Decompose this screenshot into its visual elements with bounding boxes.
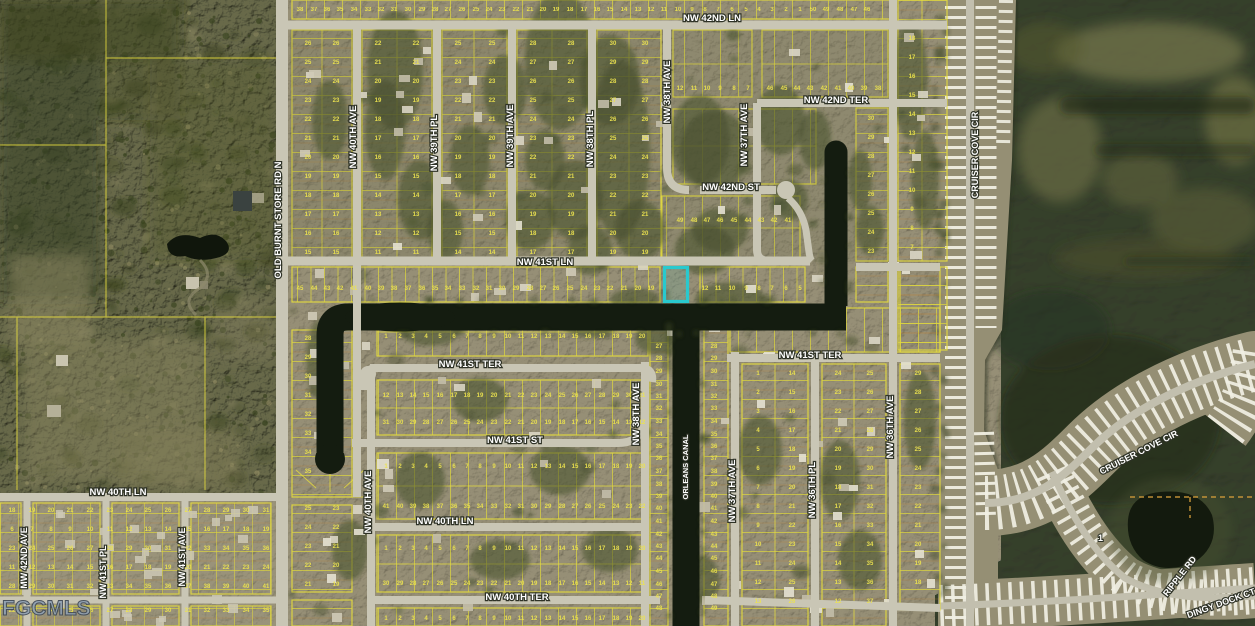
svg-text:23: 23: [530, 136, 537, 142]
svg-text:33: 33: [305, 431, 312, 437]
svg-text:41: 41: [351, 286, 358, 292]
svg-text:23: 23: [626, 504, 633, 510]
svg-text:34: 34: [656, 432, 663, 438]
svg-text:40: 40: [397, 504, 404, 510]
svg-text:13: 13: [413, 212, 420, 218]
svg-text:26: 26: [530, 79, 537, 85]
svg-text:29: 29: [29, 584, 36, 590]
svg-text:22: 22: [413, 41, 420, 47]
svg-text:17: 17: [455, 193, 462, 199]
svg-text:25: 25: [610, 136, 617, 142]
svg-text:30: 30: [397, 420, 404, 426]
svg-text:25: 25: [789, 580, 796, 586]
svg-text:18: 18: [333, 193, 340, 199]
svg-text:35: 35: [305, 469, 312, 475]
svg-text:13: 13: [545, 464, 552, 470]
svg-text:21: 21: [642, 212, 649, 218]
svg-text:NW 41ST LN: NW 41ST LN: [517, 257, 574, 268]
svg-text:26: 26: [451, 420, 458, 426]
svg-text:25: 25: [567, 286, 574, 292]
svg-text:30: 30: [243, 508, 250, 514]
svg-text:35: 35: [464, 504, 471, 510]
svg-text:49: 49: [677, 218, 684, 224]
svg-text:24: 24: [915, 466, 922, 472]
svg-text:20: 20: [540, 7, 547, 13]
svg-text:23: 23: [305, 544, 312, 550]
svg-text:13: 13: [545, 334, 552, 340]
svg-text:27: 27: [423, 581, 430, 587]
svg-text:21: 21: [305, 582, 312, 588]
svg-text:29: 29: [126, 546, 133, 552]
svg-text:23: 23: [333, 98, 340, 104]
svg-text:26: 26: [610, 117, 617, 123]
svg-text:38: 38: [656, 482, 663, 488]
svg-text:18: 18: [568, 231, 575, 237]
svg-text:17: 17: [909, 55, 916, 61]
svg-text:20: 20: [491, 393, 498, 399]
svg-text:21: 21: [505, 393, 512, 399]
svg-text:33: 33: [656, 419, 663, 425]
svg-text:14: 14: [67, 565, 74, 571]
svg-text:11: 11: [107, 527, 114, 533]
svg-text:19: 19: [568, 212, 575, 218]
svg-text:22: 22: [789, 523, 796, 529]
svg-text:13: 13: [397, 393, 404, 399]
svg-text:39: 39: [378, 286, 385, 292]
svg-text:13: 13: [755, 599, 762, 605]
svg-text:NW 41ST TER: NW 41ST TER: [439, 359, 502, 370]
svg-text:16: 16: [585, 420, 592, 426]
svg-text:44: 44: [794, 86, 801, 92]
svg-text:34: 34: [126, 584, 133, 590]
svg-text:23: 23: [594, 286, 601, 292]
svg-text:21: 21: [621, 286, 628, 292]
svg-text:15: 15: [305, 250, 312, 256]
svg-text:14: 14: [613, 420, 620, 426]
svg-text:18: 18: [613, 546, 620, 552]
svg-text:NW 40TH AVE: NW 40TH AVE: [363, 471, 374, 534]
svg-text:39: 39: [861, 86, 868, 92]
svg-text:30: 30: [868, 116, 875, 122]
svg-text:41: 41: [383, 504, 390, 510]
svg-text:41: 41: [656, 519, 663, 525]
svg-text:17: 17: [223, 527, 230, 533]
svg-text:13: 13: [835, 580, 842, 586]
svg-text:20: 20: [835, 447, 842, 453]
svg-text:15: 15: [375, 174, 382, 180]
svg-text:48: 48: [837, 7, 844, 13]
svg-text:41: 41: [711, 506, 718, 512]
svg-text:NW 38TH AVE: NW 38TH AVE: [662, 61, 673, 124]
svg-text:19: 19: [626, 616, 633, 622]
svg-text:13: 13: [48, 565, 55, 571]
svg-text:12: 12: [909, 150, 916, 156]
svg-text:29: 29: [711, 356, 718, 362]
svg-text:28: 28: [9, 584, 16, 590]
svg-text:17: 17: [375, 136, 382, 142]
svg-text:30: 30: [656, 382, 663, 388]
svg-text:25: 25: [48, 546, 55, 552]
svg-text:25: 25: [868, 211, 875, 217]
svg-text:NW 38TH AVE: NW 38TH AVE: [631, 383, 642, 446]
svg-text:16: 16: [375, 155, 382, 161]
svg-text:23: 23: [489, 79, 496, 85]
svg-text:15: 15: [572, 464, 579, 470]
svg-text:22: 22: [530, 155, 537, 161]
svg-text:46: 46: [767, 86, 774, 92]
svg-text:27: 27: [915, 409, 922, 415]
svg-text:19: 19: [610, 250, 617, 256]
svg-text:21: 21: [489, 117, 496, 123]
svg-text:16: 16: [455, 212, 462, 218]
svg-text:23: 23: [455, 79, 462, 85]
svg-text:28: 28: [599, 393, 606, 399]
svg-text:32: 32: [711, 394, 718, 400]
svg-text:29: 29: [419, 7, 426, 13]
svg-text:23: 23: [491, 420, 498, 426]
svg-text:22: 22: [568, 155, 575, 161]
svg-text:49: 49: [711, 606, 718, 612]
svg-text:10: 10: [704, 86, 711, 92]
svg-text:19: 19: [626, 464, 633, 470]
svg-text:NW 42ND LN: NW 42ND LN: [683, 13, 741, 24]
svg-text:16: 16: [585, 464, 592, 470]
svg-text:40: 40: [243, 584, 250, 590]
svg-text:10: 10: [909, 188, 916, 194]
svg-text:20: 20: [489, 136, 496, 142]
svg-text:41: 41: [785, 218, 792, 224]
svg-text:36: 36: [867, 580, 874, 586]
svg-text:17: 17: [305, 212, 312, 218]
svg-text:19: 19: [413, 98, 420, 104]
svg-text:16: 16: [909, 74, 916, 80]
svg-text:20: 20: [530, 193, 537, 199]
svg-text:30: 30: [867, 466, 874, 472]
svg-text:28: 28: [527, 286, 534, 292]
svg-text:25: 25: [305, 60, 312, 66]
svg-text:36: 36: [711, 444, 718, 450]
svg-text:19: 19: [626, 334, 633, 340]
svg-text:26: 26: [67, 546, 74, 552]
svg-text:12: 12: [677, 86, 684, 92]
svg-text:22: 22: [87, 508, 94, 514]
svg-text:14: 14: [909, 112, 916, 118]
svg-text:28: 28: [410, 581, 417, 587]
svg-text:16: 16: [835, 523, 842, 529]
svg-text:44: 44: [656, 556, 663, 562]
svg-text:11: 11: [9, 565, 16, 571]
svg-text:16: 16: [594, 7, 601, 13]
svg-text:20: 20: [639, 616, 646, 622]
svg-text:34: 34: [305, 450, 312, 456]
svg-text:NW 41ST AVE: NW 41ST AVE: [177, 527, 187, 586]
svg-text:35: 35: [432, 286, 439, 292]
svg-text:NW 42ND ST: NW 42ND ST: [702, 182, 760, 193]
svg-text:26: 26: [572, 393, 579, 399]
svg-text:28: 28: [868, 154, 875, 160]
svg-text:18: 18: [413, 117, 420, 123]
svg-text:25: 25: [455, 41, 462, 47]
svg-text:35: 35: [711, 432, 718, 438]
svg-text:14: 14: [410, 393, 417, 399]
svg-text:15: 15: [572, 546, 579, 552]
svg-text:18: 18: [464, 393, 471, 399]
svg-text:23: 23: [107, 508, 114, 514]
svg-text:14: 14: [489, 250, 496, 256]
svg-text:11: 11: [639, 581, 646, 587]
svg-text:22: 22: [607, 286, 614, 292]
svg-text:27: 27: [540, 286, 547, 292]
svg-text:25: 25: [915, 447, 922, 453]
svg-text:35: 35: [243, 546, 250, 552]
svg-text:38: 38: [391, 286, 398, 292]
svg-text:15: 15: [585, 581, 592, 587]
svg-text:14: 14: [559, 464, 566, 470]
svg-text:22: 22: [305, 117, 312, 123]
svg-text:19: 19: [915, 561, 922, 567]
svg-text:31: 31: [165, 546, 172, 552]
svg-text:15: 15: [413, 174, 420, 180]
svg-text:45: 45: [656, 569, 663, 575]
svg-text:19: 19: [626, 546, 633, 552]
svg-text:33: 33: [223, 608, 230, 614]
svg-text:28: 28: [642, 79, 649, 85]
svg-text:CRUISER COVE CIR: CRUISER COVE CIR: [970, 111, 980, 198]
svg-text:27: 27: [572, 504, 579, 510]
svg-text:18: 18: [613, 616, 620, 622]
svg-text:17: 17: [599, 334, 606, 340]
svg-text:18: 18: [613, 464, 620, 470]
svg-text:36: 36: [656, 456, 663, 462]
svg-text:25: 25: [599, 504, 606, 510]
svg-text:25: 25: [489, 41, 496, 47]
svg-text:29: 29: [545, 504, 552, 510]
svg-text:20: 20: [610, 231, 617, 237]
svg-text:15: 15: [599, 420, 606, 426]
svg-text:30: 30: [642, 41, 649, 47]
svg-text:12: 12: [126, 527, 133, 533]
svg-text:NW 41ST TER: NW 41ST TER: [779, 350, 842, 361]
svg-text:23: 23: [499, 7, 506, 13]
svg-text:31: 31: [656, 394, 663, 400]
svg-text:19: 19: [305, 174, 312, 180]
svg-text:42: 42: [711, 519, 718, 525]
svg-text:40: 40: [365, 286, 372, 292]
svg-text:33: 33: [365, 7, 372, 13]
svg-text:17: 17: [333, 212, 340, 218]
svg-text:36: 36: [419, 286, 426, 292]
svg-text:10: 10: [87, 527, 94, 533]
svg-text:25: 25: [305, 506, 312, 512]
svg-text:24: 24: [613, 504, 620, 510]
svg-text:21: 21: [505, 581, 512, 587]
svg-text:15: 15: [909, 93, 916, 99]
svg-text:NW 41ST ST: NW 41ST ST: [487, 435, 543, 446]
svg-text:42: 42: [337, 286, 344, 292]
svg-text:24: 24: [333, 79, 340, 85]
svg-text:23: 23: [868, 249, 875, 255]
svg-text:23: 23: [568, 136, 575, 142]
svg-text:17: 17: [581, 7, 588, 13]
svg-text:23: 23: [9, 546, 16, 552]
svg-text:18: 18: [489, 174, 496, 180]
svg-text:32: 32: [656, 406, 663, 412]
svg-text:22: 22: [915, 504, 922, 510]
svg-text:NW 40TH LN: NW 40TH LN: [417, 516, 474, 527]
svg-text:16: 16: [413, 155, 420, 161]
svg-text:34: 34: [477, 504, 484, 510]
svg-text:15: 15: [789, 390, 796, 396]
svg-text:32: 32: [505, 504, 512, 510]
svg-text:28: 28: [126, 608, 133, 614]
svg-text:18: 18: [530, 231, 537, 237]
svg-text:23: 23: [610, 174, 617, 180]
svg-text:23: 23: [243, 565, 250, 571]
svg-text:12: 12: [531, 464, 538, 470]
svg-text:16: 16: [572, 581, 579, 587]
svg-text:12: 12: [835, 599, 842, 605]
svg-text:16: 16: [489, 212, 496, 218]
svg-text:12: 12: [648, 7, 655, 13]
svg-text:18: 18: [9, 508, 16, 514]
svg-text:21: 21: [455, 117, 462, 123]
svg-text:24: 24: [568, 117, 575, 123]
svg-text:47: 47: [711, 582, 718, 588]
svg-text:21: 21: [375, 60, 382, 66]
svg-text:FGCMLS: FGCMLS: [2, 597, 91, 620]
svg-text:19: 19: [530, 212, 537, 218]
svg-text:29: 29: [642, 60, 649, 66]
svg-text:26: 26: [868, 192, 875, 198]
svg-text:16: 16: [437, 393, 444, 399]
svg-text:47: 47: [851, 7, 858, 13]
svg-text:26: 26: [585, 504, 592, 510]
svg-text:33: 33: [491, 504, 498, 510]
svg-text:15: 15: [333, 250, 340, 256]
svg-text:12: 12: [702, 286, 709, 292]
svg-text:19: 19: [835, 466, 842, 472]
svg-text:25: 25: [145, 508, 152, 514]
svg-text:18: 18: [559, 420, 566, 426]
svg-text:24: 24: [489, 60, 496, 66]
svg-text:38: 38: [297, 7, 304, 13]
svg-text:23: 23: [531, 393, 538, 399]
svg-text:10: 10: [505, 616, 512, 622]
svg-text:45: 45: [297, 286, 304, 292]
svg-text:11: 11: [691, 86, 698, 92]
svg-text:19: 19: [165, 565, 172, 571]
svg-text:23: 23: [835, 390, 842, 396]
svg-text:22: 22: [455, 98, 462, 104]
svg-text:11: 11: [715, 286, 722, 292]
svg-text:15: 15: [489, 231, 496, 237]
svg-text:22: 22: [639, 504, 646, 510]
svg-text:24: 24: [464, 581, 471, 587]
svg-text:26: 26: [459, 7, 466, 13]
svg-text:25: 25: [867, 371, 874, 377]
svg-text:40: 40: [848, 86, 855, 92]
svg-text:14: 14: [375, 193, 382, 199]
svg-text:46: 46: [711, 569, 718, 575]
svg-text:31: 31: [518, 504, 525, 510]
svg-text:27: 27: [868, 173, 875, 179]
svg-text:24: 24: [545, 393, 552, 399]
svg-text:18: 18: [375, 117, 382, 123]
svg-text:33: 33: [711, 406, 718, 412]
svg-text:36: 36: [165, 584, 172, 590]
svg-text:28: 28: [559, 504, 566, 510]
svg-text:43: 43: [711, 532, 718, 538]
svg-text:49: 49: [823, 7, 830, 13]
svg-text:30: 30: [305, 374, 312, 380]
svg-text:15: 15: [87, 565, 94, 571]
svg-text:10: 10: [675, 7, 682, 13]
svg-text:44: 44: [311, 286, 318, 292]
svg-text:32: 32: [867, 504, 874, 510]
svg-text:21: 21: [527, 7, 534, 13]
svg-text:13: 13: [545, 546, 552, 552]
svg-text:24: 24: [789, 561, 796, 567]
svg-text:21: 21: [789, 504, 796, 510]
svg-text:27: 27: [107, 608, 114, 614]
svg-text:20: 20: [333, 563, 340, 569]
svg-text:47: 47: [656, 594, 663, 600]
svg-text:12: 12: [375, 231, 382, 237]
svg-text:23: 23: [333, 506, 340, 512]
svg-text:40: 40: [656, 506, 663, 512]
svg-text:18: 18: [545, 581, 552, 587]
svg-text:19: 19: [531, 581, 538, 587]
svg-text:46: 46: [656, 582, 663, 588]
svg-text:19: 19: [545, 420, 552, 426]
svg-text:26: 26: [789, 599, 796, 605]
svg-text:18: 18: [243, 527, 250, 533]
svg-text:20: 20: [531, 420, 538, 426]
svg-text:16: 16: [585, 616, 592, 622]
svg-text:13: 13: [375, 212, 382, 218]
svg-text:16: 16: [204, 527, 211, 533]
svg-text:30: 30: [383, 581, 390, 587]
svg-text:26: 26: [305, 41, 312, 47]
svg-text:14: 14: [413, 193, 420, 199]
svg-text:10: 10: [505, 546, 512, 552]
svg-text:27: 27: [445, 7, 452, 13]
svg-text:12: 12: [531, 546, 538, 552]
svg-text:35: 35: [337, 7, 344, 13]
svg-text:27: 27: [530, 60, 537, 66]
svg-text:17: 17: [599, 464, 606, 470]
svg-text:12: 12: [531, 616, 538, 622]
svg-text:18: 18: [915, 580, 922, 586]
svg-text:14: 14: [835, 561, 842, 567]
svg-text:20: 20: [518, 581, 525, 587]
svg-text:NW 40TH LN: NW 40TH LN: [90, 487, 147, 498]
svg-text:11: 11: [375, 250, 382, 256]
svg-text:22: 22: [642, 193, 649, 199]
svg-text:44: 44: [711, 544, 718, 550]
svg-text:31: 31: [67, 584, 74, 590]
svg-text:17: 17: [489, 193, 496, 199]
svg-text:31: 31: [263, 508, 270, 514]
svg-text:39: 39: [656, 494, 663, 500]
svg-text:19: 19: [29, 508, 36, 514]
svg-text:28: 28: [530, 41, 537, 47]
svg-text:31: 31: [486, 286, 493, 292]
svg-text:24: 24: [486, 7, 493, 13]
svg-text:30: 30: [499, 286, 506, 292]
svg-text:13: 13: [145, 527, 152, 533]
svg-text:32: 32: [204, 608, 211, 614]
